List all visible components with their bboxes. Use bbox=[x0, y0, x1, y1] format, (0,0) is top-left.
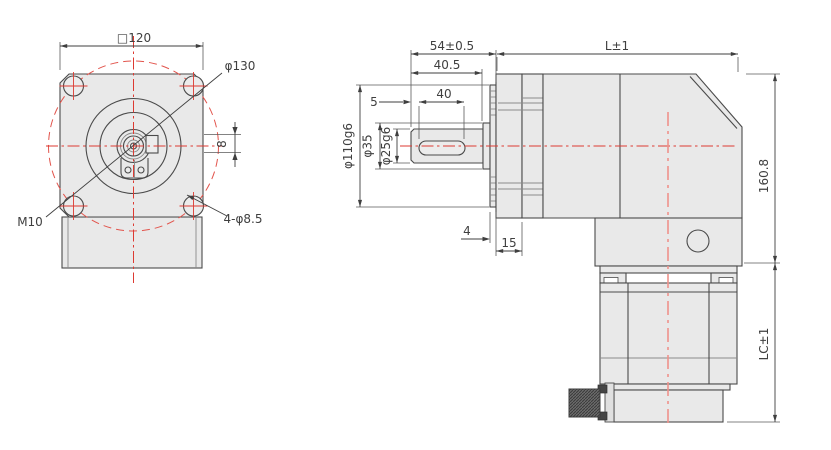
dim-body-length-label: L±1 bbox=[605, 39, 629, 53]
dim-key-offset: 5 bbox=[370, 95, 411, 109]
tab-slot-left bbox=[604, 278, 618, 284]
dim-flange-width: □120 bbox=[60, 31, 203, 70]
front-view: □120 φ130 M10 4-φ8.5 8 bbox=[17, 31, 262, 283]
bracket-screw bbox=[125, 167, 131, 173]
dim-body-height: 160.8 bbox=[744, 74, 780, 263]
bracket-screw bbox=[138, 167, 144, 173]
dim-shaft-dia-label: φ25g6 bbox=[379, 127, 393, 165]
dim-motor-length-label: LC±1 bbox=[757, 328, 771, 361]
dim-mount-holes-label: 4-φ8.5 bbox=[224, 212, 263, 226]
connector-body bbox=[569, 389, 600, 417]
dim-plate-thickness-label: 4 bbox=[463, 224, 471, 238]
dim-key-length-label: 40 bbox=[436, 87, 451, 101]
tab-slot-right bbox=[719, 278, 733, 284]
dim-body-length: L±1 bbox=[497, 39, 738, 72]
dim-flange-thickness: 15 bbox=[496, 222, 522, 256]
motor bbox=[569, 266, 737, 422]
motor-connector bbox=[569, 383, 614, 422]
dim-flange-thickness-label: 15 bbox=[501, 236, 516, 250]
motor-cap-lip bbox=[609, 384, 730, 390]
keyway-side bbox=[419, 141, 465, 155]
side-view: 54±0.5 L±1 40.5 5 40 bbox=[341, 39, 780, 428]
dim-body-height-label: 160.8 bbox=[757, 159, 771, 193]
dim-pilot-dia-label: φ110g6 bbox=[341, 123, 355, 169]
dim-shaft-length-label: 54±0.5 bbox=[430, 39, 474, 53]
drawing-canvas: □120 φ130 M10 4-φ8.5 8 bbox=[0, 0, 831, 450]
dim-plate-thickness: 4 bbox=[461, 212, 496, 256]
dim-key-offset-label: 5 bbox=[370, 95, 378, 109]
dim-bolt-circle-label: φ130 bbox=[225, 59, 256, 73]
dim-key-width: 8 bbox=[204, 122, 241, 167]
dim-shoulder-dia-label: φ35 bbox=[361, 134, 375, 157]
dim-key-width-label: 8 bbox=[215, 140, 229, 148]
dim-thread-label: M10 bbox=[17, 215, 43, 229]
dim-flange-width-label: □120 bbox=[117, 31, 151, 45]
keyway-front bbox=[146, 136, 158, 154]
dim-pilot-length-label: 40.5 bbox=[434, 58, 461, 72]
front-housing-body bbox=[62, 217, 202, 268]
dim-shaft-length: 54±0.5 bbox=[411, 39, 496, 127]
gearbox-technical-drawing: □120 φ130 M10 4-φ8.5 8 bbox=[0, 0, 831, 450]
